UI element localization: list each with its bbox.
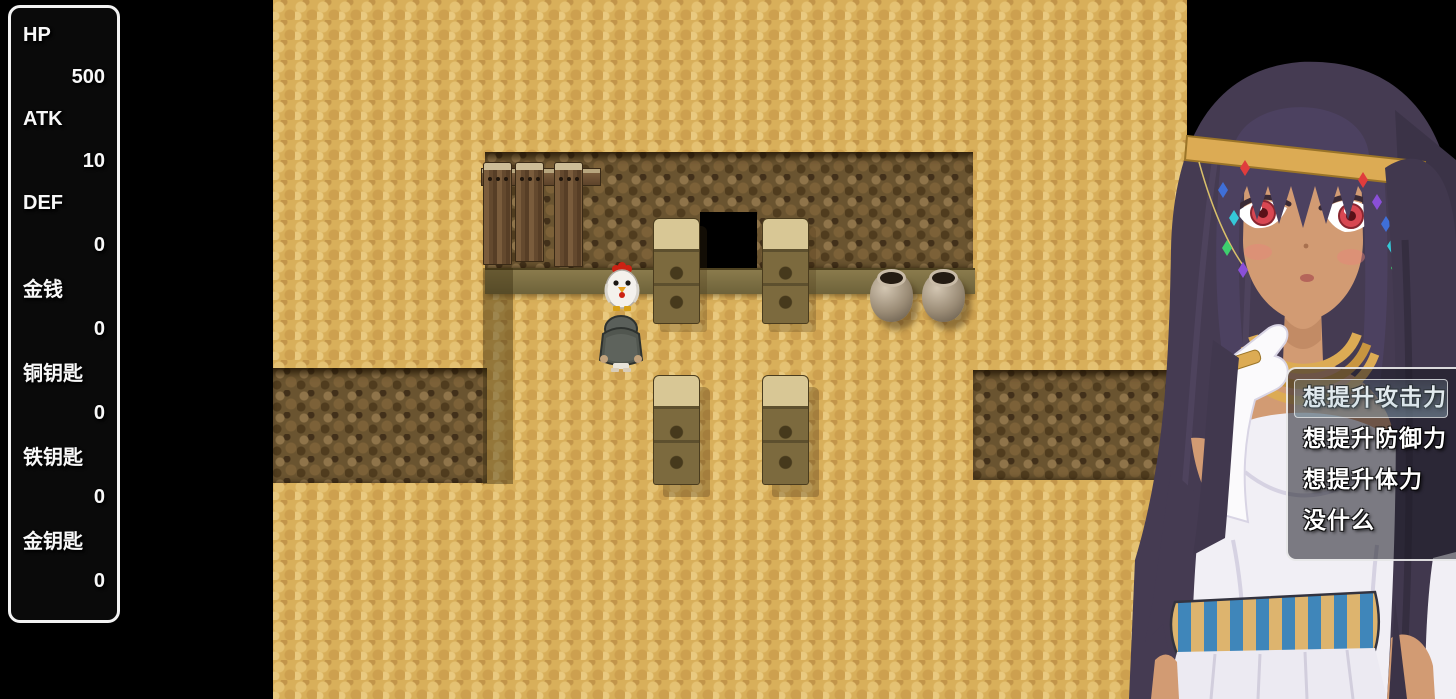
choice-menu[interactable]: 想提升攻击力 想提升防御力 想提升体力 没什么: [1286, 367, 1456, 561]
stone-pillar: [762, 218, 809, 324]
chicken-sprite: [602, 262, 642, 312]
game-screen: HP 500 ATK 10 DEF 0 金钱 0 铜钥匙 0 铁钥匙 0 金钥匙…: [0, 0, 1456, 699]
wooden-plank: [483, 162, 512, 265]
clay-pot: [870, 272, 913, 322]
clay-pot: [922, 272, 965, 322]
stat-value-gold: 0: [23, 308, 117, 350]
choice-item-hp-up[interactable]: 想提升体力: [1288, 459, 1456, 500]
stat-label-gold-key: 金钥匙: [23, 518, 117, 560]
stat-label-gold: 金钱: [23, 266, 117, 308]
game-map[interactable]: [273, 0, 1187, 699]
choice-item-nothing[interactable]: 没什么: [1288, 500, 1456, 541]
stat-label-hp: HP: [23, 14, 117, 56]
stat-value-gold-key: 0: [23, 560, 117, 602]
wall-shadow: [483, 268, 513, 484]
stats-panel: HP 500 ATK 10 DEF 0 金钱 0 铜钥匙 0 铁钥匙 0 金钥匙…: [8, 5, 120, 623]
choice-item-defense-up[interactable]: 想提升防御力: [1288, 418, 1456, 459]
stat-label-copper-key: 铜钥匙: [23, 350, 117, 392]
stone-pillar: [653, 218, 700, 324]
stat-value-copper-key: 0: [23, 392, 117, 434]
stat-label-atk: ATK: [23, 98, 117, 140]
stat-label-iron-key: 铁钥匙: [23, 434, 117, 476]
hooded-player-sprite: [598, 314, 644, 372]
stone-pillar: [762, 375, 809, 485]
stat-label-def: DEF: [23, 182, 117, 224]
wooden-plank: [515, 162, 544, 262]
stat-value-hp: 500: [23, 56, 117, 98]
dark-doorway[interactable]: [700, 212, 757, 268]
wooden-plank: [554, 162, 583, 267]
stat-value-iron-key: 0: [23, 476, 117, 518]
stat-value-atk: 10: [23, 140, 117, 182]
stat-value-def: 0: [23, 224, 117, 266]
choice-item-attack-up[interactable]: 想提升攻击力: [1288, 377, 1456, 418]
rock-wall-left: [273, 368, 487, 483]
stone-pillar: [653, 375, 700, 485]
